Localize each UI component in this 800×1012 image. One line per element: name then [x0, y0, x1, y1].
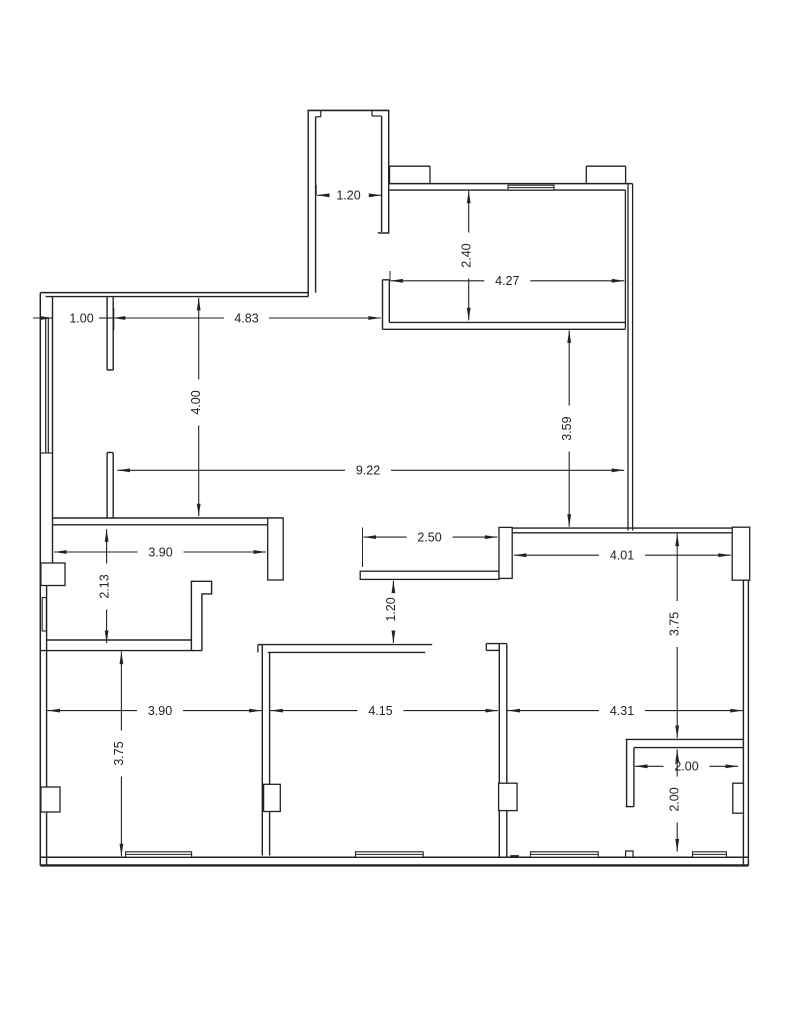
svg-text:4.83: 4.83 — [234, 311, 258, 325]
svg-text:1.00: 1.00 — [69, 311, 93, 325]
svg-text:9.22: 9.22 — [356, 464, 380, 478]
svg-text:2.13: 2.13 — [97, 574, 111, 598]
svg-text:2.00: 2.00 — [668, 787, 682, 811]
svg-text:4.15: 4.15 — [368, 704, 392, 718]
svg-text:4.31: 4.31 — [610, 704, 634, 718]
svg-text:4.27: 4.27 — [495, 274, 519, 288]
svg-text:1.20: 1.20 — [384, 597, 398, 621]
svg-text:2.40: 2.40 — [459, 243, 473, 267]
svg-text:1.20: 1.20 — [336, 189, 360, 203]
svg-text:3.75: 3.75 — [668, 612, 682, 636]
svg-text:3.90: 3.90 — [148, 704, 172, 718]
svg-text:3.59: 3.59 — [560, 416, 574, 440]
svg-text:4.01: 4.01 — [610, 549, 634, 563]
svg-text:2.50: 2.50 — [417, 530, 441, 544]
svg-text:3.90: 3.90 — [148, 545, 172, 559]
svg-text:4.00: 4.00 — [189, 390, 203, 414]
svg-text:3.75: 3.75 — [112, 741, 126, 765]
